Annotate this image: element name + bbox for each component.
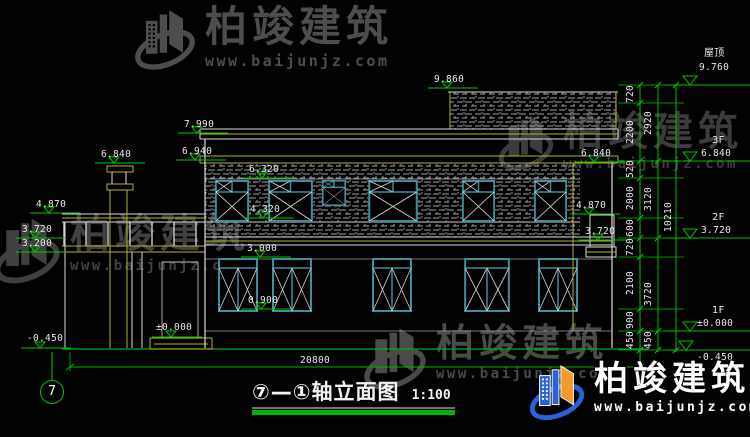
elevation-marker: 3.200 bbox=[22, 239, 52, 249]
title-underline bbox=[252, 408, 455, 415]
dim-text: 10210 bbox=[664, 202, 674, 232]
elevation-marker: 4.870 bbox=[36, 200, 66, 210]
level-value: -0.450 bbox=[697, 353, 733, 363]
elevation-marker: 6.940 bbox=[182, 147, 212, 157]
elevation-marker: -0.450 bbox=[27, 334, 63, 344]
level-value: 3.720 bbox=[701, 226, 731, 236]
level-label: 2F bbox=[712, 213, 725, 223]
axis-bubble: 7 bbox=[40, 380, 64, 404]
elevation-marker: 3.720 bbox=[585, 227, 615, 237]
elevation-marker: 6.840 bbox=[581, 149, 611, 159]
level-label: 1F bbox=[712, 306, 725, 316]
dim-text: 2920 bbox=[644, 111, 654, 135]
elevation-marker: 0.900 bbox=[248, 296, 278, 306]
dim-text: 900 bbox=[626, 311, 636, 329]
chimney bbox=[107, 166, 133, 348]
main-block bbox=[200, 92, 618, 348]
elevation-drawing bbox=[0, 0, 750, 437]
dim-text: 520 bbox=[626, 160, 636, 178]
dim-text: 3720 bbox=[644, 282, 654, 306]
elevation-marker: 6.320 bbox=[249, 165, 279, 175]
elevation-marker: ±0.000 bbox=[156, 323, 192, 333]
dim-text: 3120 bbox=[644, 187, 654, 211]
dim-text: 2000 bbox=[626, 186, 636, 210]
elevation-marker: 3.720 bbox=[22, 225, 52, 235]
level-label: 屋顶 bbox=[704, 49, 725, 59]
dim-text: 720 bbox=[626, 85, 636, 103]
elevation-marker: 7.990 bbox=[184, 120, 214, 130]
level-value: 6.840 bbox=[701, 149, 731, 159]
elevation-marker: 6.840 bbox=[101, 150, 131, 160]
cad-elevation-sheet: 柏竣建筑 www.baijunjz.com 柏竣建筑 www.baijunjz.… bbox=[0, 0, 750, 437]
dim-text: 600 bbox=[626, 219, 636, 237]
drawing-scale: 1:100 bbox=[412, 388, 451, 405]
dim-text: 450 bbox=[644, 331, 654, 349]
elevation-marker: 9.860 bbox=[434, 75, 464, 85]
dim-text: 2200 bbox=[626, 120, 636, 144]
dim-text: 720 bbox=[626, 238, 636, 256]
level-value: 9.760 bbox=[699, 63, 729, 73]
elevation-marker: 4.320 bbox=[250, 205, 280, 215]
level-value: ±0.000 bbox=[697, 319, 733, 329]
elevation-marker: 3.000 bbox=[247, 244, 277, 254]
dim-text: 2100 bbox=[626, 271, 636, 295]
elevation-marker: 4.870 bbox=[576, 201, 606, 211]
level-label: 3F bbox=[712, 136, 725, 146]
dim-text-total-width: 20800 bbox=[300, 356, 330, 366]
drawing-title: ⑦—①轴立面图 bbox=[252, 379, 400, 405]
drawing-title-block: ⑦—①轴立面图 1:100 bbox=[252, 379, 451, 405]
dim-text: 450 bbox=[626, 331, 636, 349]
ground-lines bbox=[52, 349, 648, 380]
